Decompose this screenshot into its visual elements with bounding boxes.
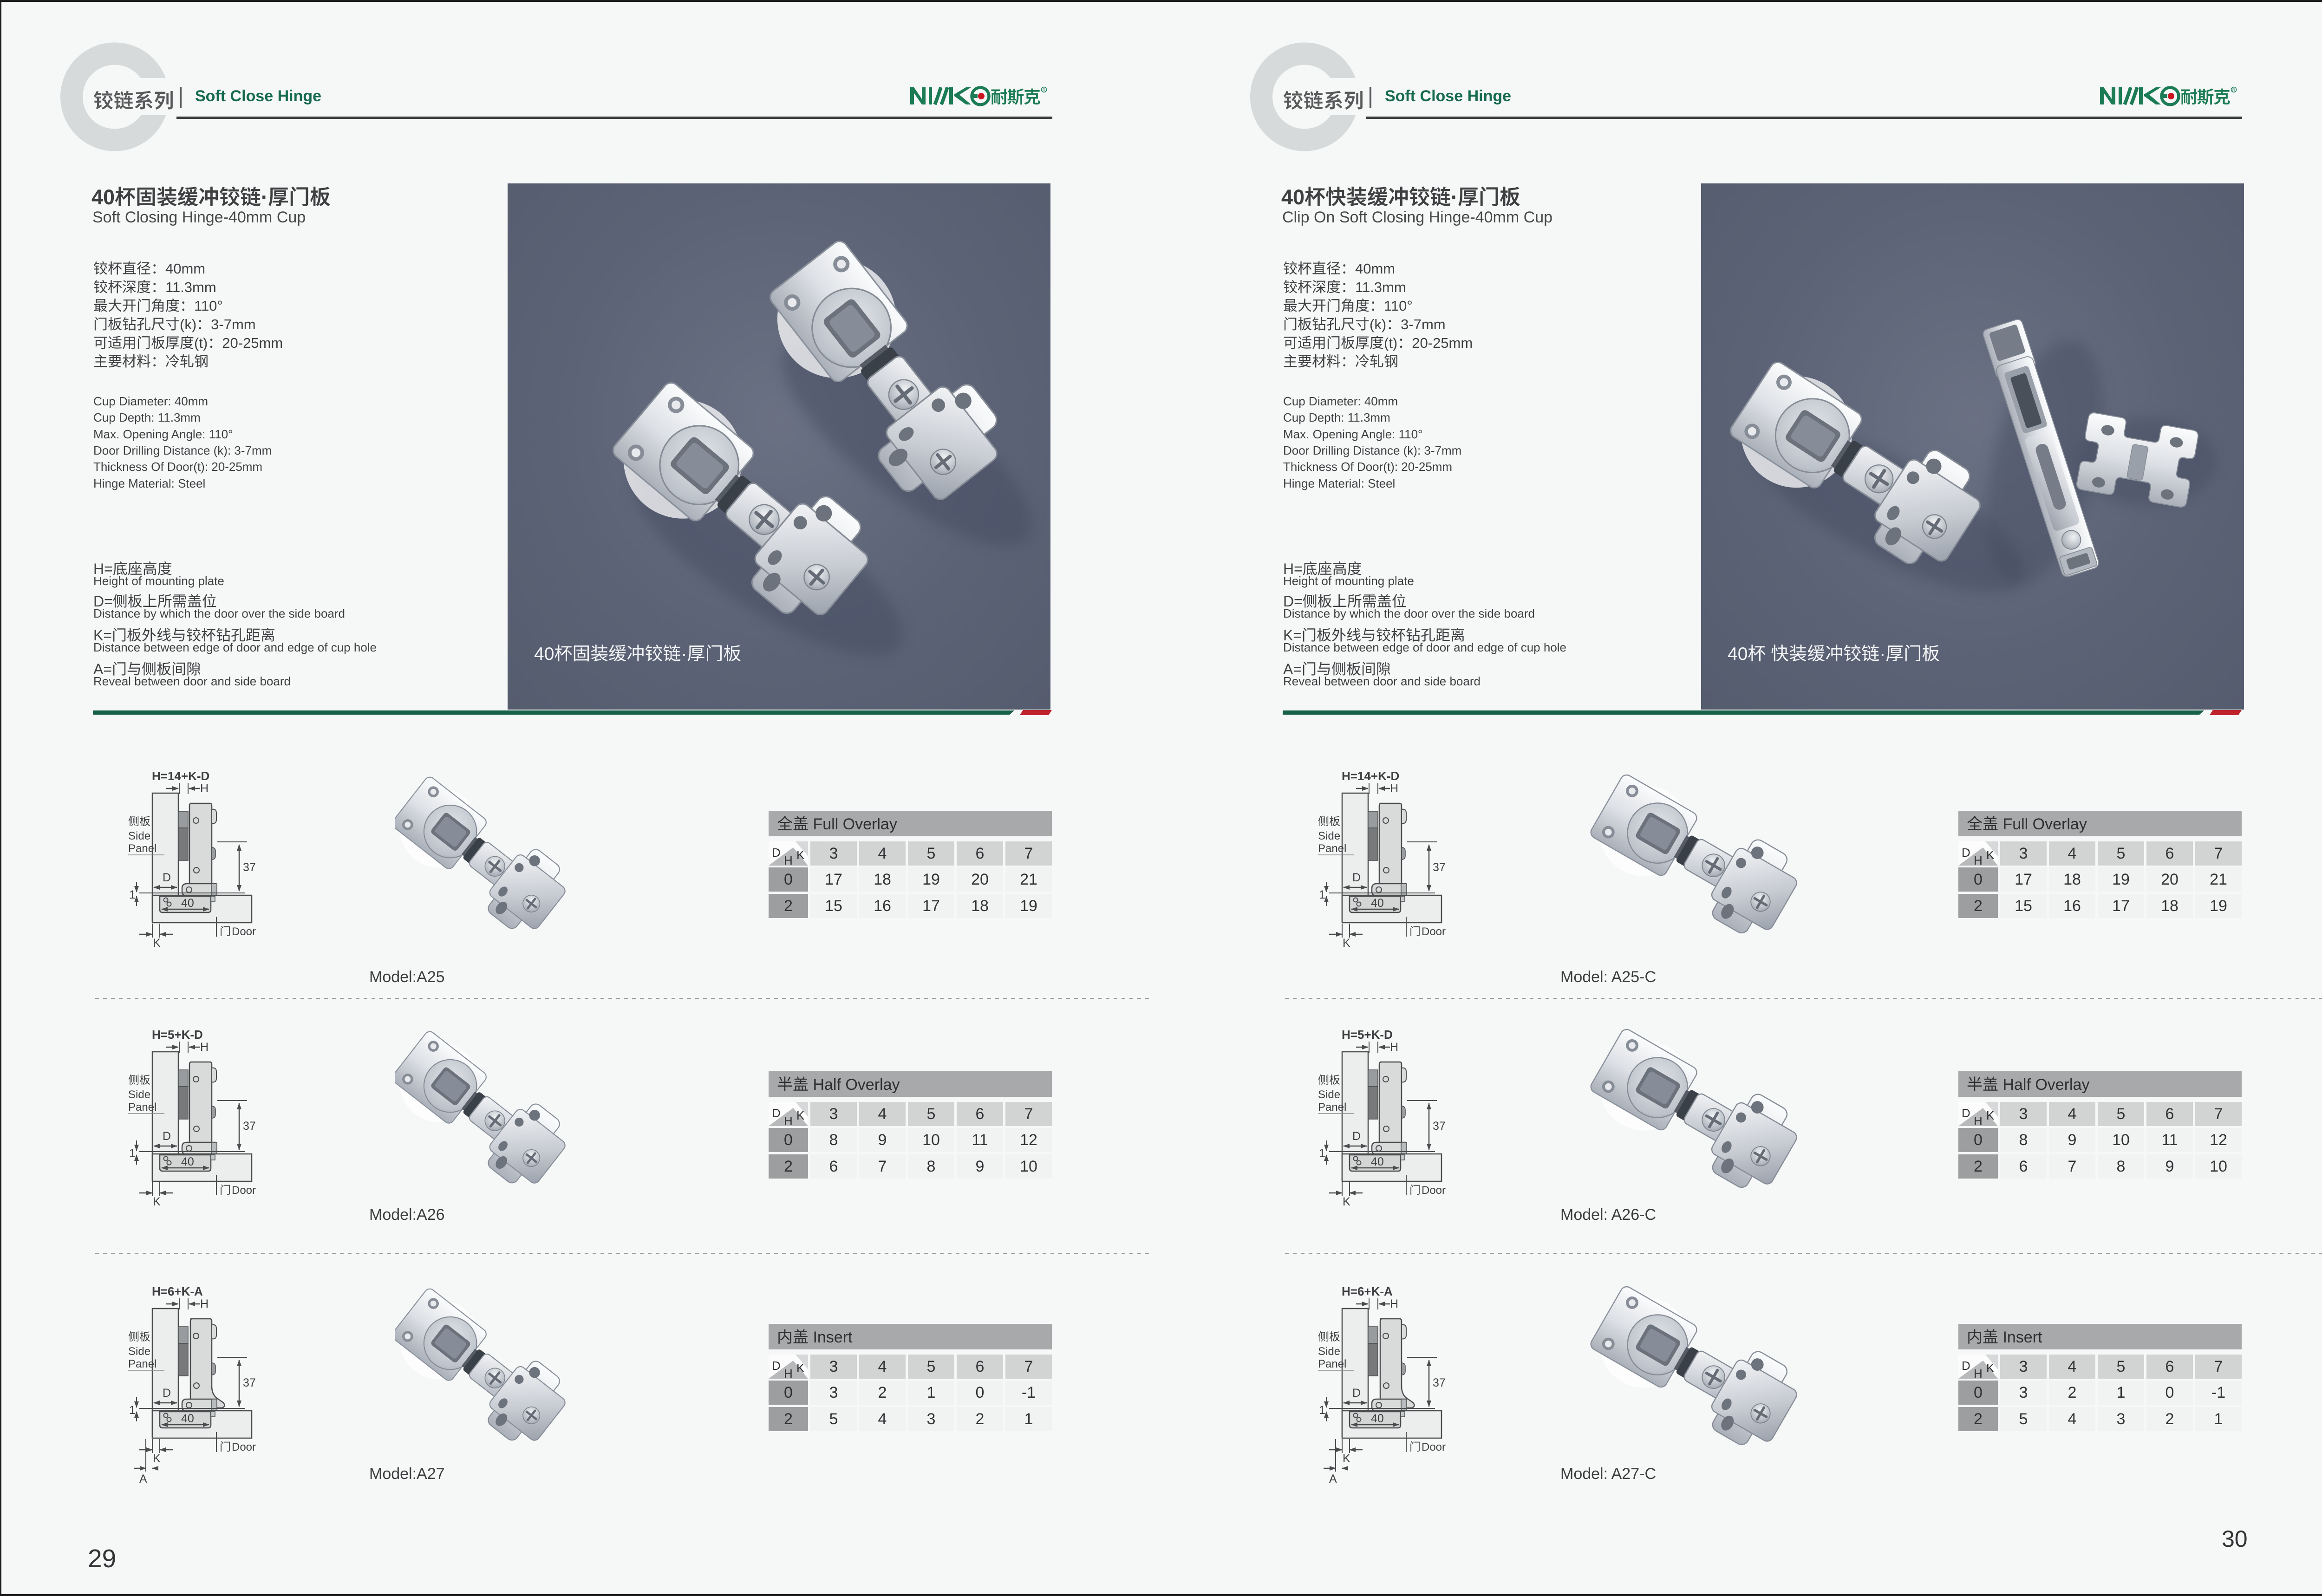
svg-text:Side: Side	[1318, 830, 1340, 842]
svg-text:1: 1	[129, 1147, 136, 1160]
svg-text:37: 37	[243, 1376, 256, 1389]
svg-text:H: H	[784, 1367, 793, 1379]
svg-text:Door: Door	[232, 1184, 256, 1197]
svg-text:耐斯克: 耐斯克	[991, 84, 1040, 108]
svg-text:K: K	[796, 848, 805, 862]
svg-text:37: 37	[1433, 1376, 1446, 1389]
svg-text:40: 40	[1371, 1155, 1384, 1168]
svg-text:1: 1	[1319, 1147, 1325, 1160]
svg-text:H=14+K-D: H=14+K-D	[152, 769, 209, 783]
svg-text:Panel: Panel	[128, 1358, 157, 1370]
svg-text:D: D	[163, 871, 171, 884]
svg-text:Door: Door	[1422, 1184, 1446, 1197]
svg-text:1: 1	[1319, 888, 1325, 901]
svg-text:Door: Door	[232, 925, 256, 938]
svg-text:D: D	[1352, 871, 1361, 884]
svg-text:H: H	[1390, 1041, 1398, 1054]
svg-text:D: D	[772, 1359, 781, 1373]
svg-text:侧板: 侧板	[1318, 812, 1340, 828]
svg-text:D: D	[1962, 1106, 1970, 1120]
svg-text:D: D	[163, 1130, 171, 1143]
svg-text:K: K	[153, 1452, 161, 1465]
svg-text:Panel: Panel	[128, 1101, 157, 1114]
svg-text:H: H	[1974, 853, 1983, 866]
svg-text:K: K	[1343, 1195, 1350, 1208]
svg-text:Side: Side	[1318, 1088, 1340, 1101]
svg-text:37: 37	[1433, 861, 1446, 874]
svg-text:A: A	[1329, 1472, 1337, 1485]
svg-text:D: D	[1962, 1359, 1970, 1373]
svg-text:K: K	[796, 1361, 805, 1375]
svg-text:37: 37	[1433, 1120, 1446, 1133]
svg-text:H: H	[1974, 1367, 1983, 1379]
svg-text:Panel: Panel	[1318, 1101, 1346, 1114]
svg-text:Panel: Panel	[1318, 842, 1346, 855]
svg-text:H=6+K-A: H=6+K-A	[152, 1284, 203, 1298]
svg-text:D: D	[772, 1106, 781, 1120]
svg-text:H: H	[200, 1041, 209, 1054]
svg-text:K: K	[1343, 1452, 1350, 1465]
svg-text:H: H	[784, 853, 793, 866]
svg-text:H=6+K-A: H=6+K-A	[1342, 1284, 1393, 1298]
svg-text:K: K	[1986, 1361, 1995, 1375]
svg-text:K: K	[153, 937, 161, 950]
svg-text:H: H	[1974, 1114, 1983, 1126]
svg-text:K: K	[1986, 848, 1995, 862]
svg-text:门: 门	[220, 922, 231, 938]
svg-text:H=5+K-D: H=5+K-D	[152, 1028, 203, 1042]
svg-text:H: H	[200, 1297, 209, 1310]
svg-text:侧板: 侧板	[128, 1328, 150, 1344]
svg-text:侧板: 侧板	[1318, 1071, 1340, 1087]
svg-text:侧板: 侧板	[1318, 1328, 1340, 1344]
svg-text:Side: Side	[128, 1345, 150, 1358]
svg-text:K: K	[153, 1195, 161, 1208]
svg-text:1: 1	[1319, 1404, 1325, 1417]
svg-text:侧板: 侧板	[128, 1071, 150, 1087]
svg-text:Panel: Panel	[128, 842, 157, 855]
svg-text:D: D	[772, 846, 781, 860]
svg-text:门: 门	[1409, 922, 1421, 938]
svg-text:D: D	[163, 1387, 171, 1400]
svg-text:耐斯克: 耐斯克	[2180, 84, 2230, 108]
svg-text:H=14+K-D: H=14+K-D	[1342, 769, 1399, 783]
svg-text:1: 1	[129, 888, 136, 901]
svg-text:A: A	[139, 1472, 147, 1485]
svg-text:Side: Side	[1318, 1345, 1340, 1358]
svg-text:1: 1	[129, 1404, 136, 1417]
svg-text:H: H	[784, 1114, 793, 1126]
svg-text:37: 37	[243, 1120, 256, 1133]
svg-text:侧板: 侧板	[128, 812, 150, 828]
svg-text:40: 40	[181, 1155, 194, 1168]
svg-text:Door: Door	[1422, 925, 1446, 938]
svg-text:H: H	[1390, 1297, 1398, 1310]
svg-text:40: 40	[181, 1412, 194, 1425]
svg-text:门: 门	[1409, 1181, 1421, 1197]
svg-text:R: R	[1043, 88, 1046, 92]
svg-text:40: 40	[1371, 897, 1384, 910]
svg-text:K: K	[1986, 1108, 1995, 1122]
svg-text:H: H	[200, 782, 209, 795]
svg-text:Door: Door	[1422, 1441, 1446, 1453]
svg-text:K: K	[1343, 937, 1350, 950]
svg-text:H: H	[1390, 782, 1398, 795]
svg-text:H=5+K-D: H=5+K-D	[1342, 1028, 1393, 1042]
svg-text:40: 40	[1371, 1412, 1384, 1425]
svg-text:门: 门	[220, 1438, 231, 1454]
svg-text:40: 40	[181, 897, 194, 910]
svg-text:门: 门	[220, 1181, 231, 1197]
svg-text:D: D	[1352, 1130, 1361, 1143]
svg-text:Panel: Panel	[1318, 1358, 1346, 1370]
svg-text:Door: Door	[232, 1441, 256, 1453]
svg-text:Side: Side	[128, 830, 150, 842]
svg-text:D: D	[1962, 846, 1970, 860]
svg-text:Side: Side	[128, 1088, 150, 1101]
svg-text:R: R	[2232, 88, 2236, 92]
svg-text:门: 门	[1409, 1438, 1421, 1454]
svg-text:37: 37	[243, 861, 256, 874]
svg-text:K: K	[796, 1108, 805, 1122]
svg-text:D: D	[1352, 1387, 1361, 1400]
